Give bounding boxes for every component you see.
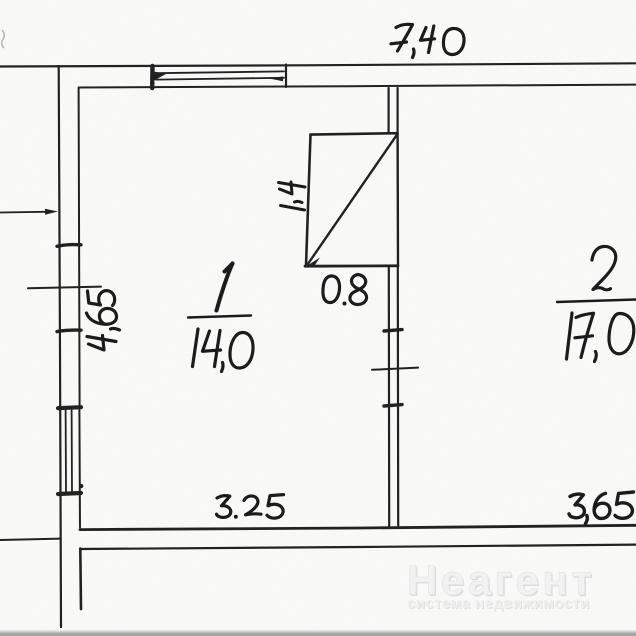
svg-text:система недвижимости: система недвижимости <box>407 595 590 612</box>
